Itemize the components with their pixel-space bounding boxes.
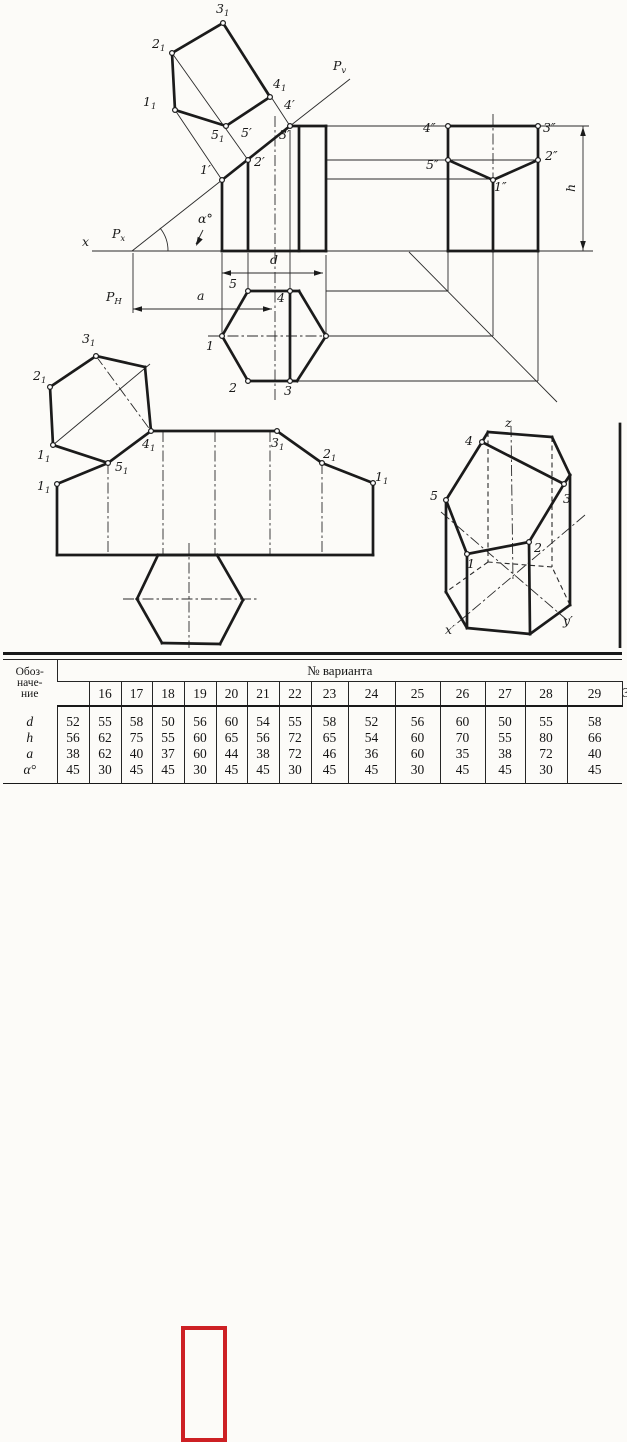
point-label: 4 — [276, 290, 285, 305]
table-cell: 37 — [152, 746, 184, 762]
point-label: 5 — [229, 276, 237, 291]
table-cell: 30 — [279, 762, 311, 784]
point-label: 2″ — [544, 148, 558, 163]
table-row-d: d525558505660545558525660505558 — [3, 706, 622, 730]
point-label: 11 — [143, 94, 156, 112]
table-cell: 60 — [395, 730, 440, 746]
table-cell: 60 — [216, 706, 247, 730]
highlight-box-variant-20 — [181, 1326, 227, 1442]
table-cell: 70 — [440, 730, 485, 746]
table-cell: 45 — [121, 762, 152, 784]
table-cell: 62 — [89, 730, 121, 746]
table-cell: 72 — [279, 746, 311, 762]
table-cell: 80 — [525, 730, 567, 746]
table-cell: 55 — [279, 706, 311, 730]
table-cell: 56 — [57, 730, 89, 746]
point-label: y′ — [562, 613, 573, 628]
table-cell: 50 — [485, 706, 525, 730]
point-label: 1 — [206, 338, 214, 353]
point-label: 31 — [271, 435, 284, 453]
variant-header-16: 16 — [89, 682, 121, 707]
point-label: x′ — [445, 622, 455, 637]
point-label: z — [504, 415, 512, 430]
table-cell: 60 — [184, 730, 216, 746]
point-label: 2′ — [253, 154, 265, 169]
table-cell: 30 — [184, 762, 216, 784]
variant-header-20: 20 — [216, 682, 247, 707]
table-cell: 75 — [121, 730, 152, 746]
point-label: α° — [198, 211, 213, 226]
table-cell: 72 — [525, 746, 567, 762]
variant-header-25: 25 — [395, 682, 440, 707]
table-cell: 66 — [567, 730, 622, 746]
variant-header-23: 23 — [311, 682, 348, 707]
table-top-rule — [3, 652, 622, 655]
variant-header-27: 27 — [485, 682, 525, 707]
table-cell: 65 — [311, 730, 348, 746]
table-cell: 35 — [440, 746, 485, 762]
table-cell: 60 — [395, 746, 440, 762]
point-label: 11 — [37, 478, 50, 496]
table-cell: 45 — [311, 762, 348, 784]
table-cell: 55 — [485, 730, 525, 746]
table-cell: 52 — [348, 706, 395, 730]
point-label: d — [270, 252, 278, 267]
row-label: α° — [3, 762, 57, 784]
variant-header-29: 29 — [567, 682, 622, 707]
point-label: a — [197, 288, 204, 303]
point-label: Pv — [332, 58, 346, 76]
table-cell: 62 — [89, 746, 121, 762]
table-cell: 54 — [247, 706, 279, 730]
table-row-α°: α°453045453045453045453045453045 — [3, 762, 622, 784]
variants-table: Обоз- наче- ние № варианта 1617181920212… — [3, 659, 622, 784]
designation-line: Обоз- — [3, 667, 57, 678]
table-cell: 30 — [395, 762, 440, 784]
variant-header-22: 22 — [279, 682, 311, 707]
designation-header: Обоз- наче- ние — [3, 660, 57, 707]
table-cell: 60 — [184, 746, 216, 762]
table-header-row: Обоз- наче- ние № варианта — [3, 660, 622, 682]
point-label: 51 — [211, 127, 224, 145]
table-cell: 40 — [121, 746, 152, 762]
variant-span-header: № варианта — [57, 660, 622, 682]
table-cell: 55 — [152, 730, 184, 746]
variant-header-17: 17 — [121, 682, 152, 707]
table-cell: 40 — [567, 746, 622, 762]
point-label: 21 — [32, 368, 46, 386]
table-cell: 38 — [57, 746, 89, 762]
variant-header-18: 18 — [152, 682, 184, 707]
table-cell: 50 — [152, 706, 184, 730]
point-label: 3′ — [279, 127, 290, 142]
point-label: 3″ — [543, 120, 556, 135]
table-cell: 58 — [311, 706, 348, 730]
point-label: 31 — [216, 1, 229, 19]
point-label: 5′ — [241, 125, 252, 140]
designation-spacer — [57, 682, 89, 707]
table-cell: 45 — [567, 762, 622, 784]
table-cell: 45 — [348, 762, 395, 784]
point-label: 2 — [533, 540, 542, 555]
table-cell: 72 — [279, 730, 311, 746]
table-cell: 38 — [485, 746, 525, 762]
variant-header-28: 28 — [525, 682, 567, 707]
point-label: 5 — [430, 488, 438, 503]
table-cell: 45 — [485, 762, 525, 784]
variant-header-26: 26 — [440, 682, 485, 707]
point-label: 4″ — [422, 120, 436, 135]
table-cell: 60 — [440, 706, 485, 730]
table-cell: 30 — [89, 762, 121, 784]
row-label: h — [3, 730, 57, 746]
projection-drawing: 3121115141Pv4′3′5′2′1′α°xPxPHad541234″3″… — [0, 0, 627, 648]
designation-line: ние — [3, 689, 57, 700]
table-cell: 36 — [348, 746, 395, 762]
table-row-h: h566275556065567265546070558066 — [3, 730, 622, 746]
variant-header-24: 24 — [348, 682, 395, 707]
table-cell: 54 — [348, 730, 395, 746]
table-cell: 46 — [311, 746, 348, 762]
point-label: 51 — [115, 459, 128, 477]
row-label: d — [3, 706, 57, 730]
point-label: 11 — [375, 469, 388, 487]
point-label: 41 — [272, 76, 286, 94]
row-label: a — [3, 746, 57, 762]
point-label: 3 — [563, 491, 571, 506]
table-cell: 58 — [121, 706, 152, 730]
point-label: 11 — [37, 447, 50, 465]
table-cell: 45 — [57, 762, 89, 784]
table-cell: 38 — [247, 746, 279, 762]
table-cell: 45 — [440, 762, 485, 784]
point-label: h — [563, 184, 578, 192]
table-cell: 45 — [216, 762, 247, 784]
point-label: 41 — [141, 436, 155, 454]
table-cell: 52 — [57, 706, 89, 730]
point-labels: 3121115141Pv4′3′5′2′1′α°xPxPHad541234″3″… — [32, 1, 578, 637]
table-cell: 44 — [216, 746, 247, 762]
table-cell: 55 — [89, 706, 121, 730]
point-label: 4 — [464, 433, 473, 448]
table-cell: 56 — [247, 730, 279, 746]
point-label: 2 — [228, 380, 237, 395]
thin-lines — [53, 23, 593, 445]
table-row-a: a386240376044387246366035387240 — [3, 746, 622, 762]
table-cell: 58 — [567, 706, 622, 730]
point-label: PH — [105, 289, 122, 307]
table-cell: 55 — [525, 706, 567, 730]
point-label: 31 — [82, 331, 95, 349]
point-label: 3 — [284, 383, 292, 398]
page: 3121115141Pv4′3′5′2′1′α°xPxPHad541234″3″… — [0, 0, 627, 789]
point-label: x — [82, 234, 89, 249]
variant-number-row: 161718192021222324252627282930 — [3, 682, 622, 707]
point-label: 1″ — [494, 179, 507, 194]
table-cell: 56 — [395, 706, 440, 730]
variant-header-21: 21 — [247, 682, 279, 707]
table-cell: 65 — [216, 730, 247, 746]
point-label: 21 — [151, 36, 165, 54]
table-cell: 30 — [525, 762, 567, 784]
table-cell: 56 — [184, 706, 216, 730]
point-label: 1′ — [200, 162, 211, 177]
point-label: 5″ — [426, 157, 439, 172]
point-label: Px — [111, 226, 125, 244]
table-cell: 45 — [247, 762, 279, 784]
variants-table-area: Обоз- наче- ние № варианта 1617181920212… — [0, 648, 627, 789]
designation-line: наче- — [3, 678, 57, 689]
table-cell: 45 — [152, 762, 184, 784]
point-label: 4′ — [283, 97, 295, 112]
hidden-lines — [446, 432, 570, 605]
variant-header-19: 19 — [184, 682, 216, 707]
point-label: 1 — [467, 556, 475, 571]
